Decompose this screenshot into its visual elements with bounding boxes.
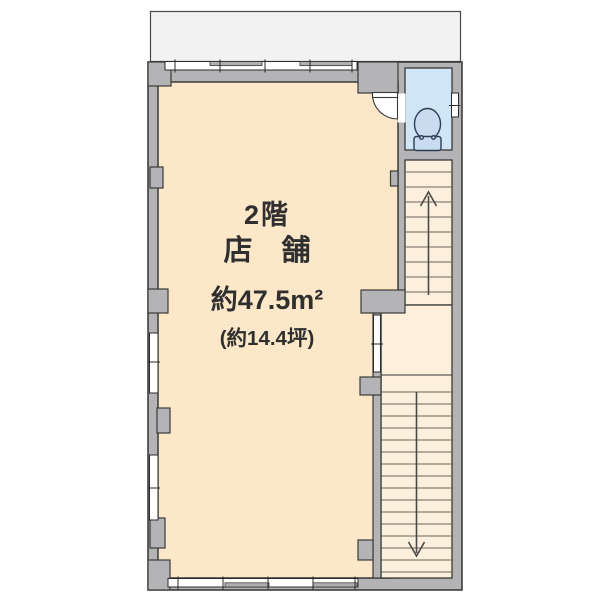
upper-staircase	[405, 160, 452, 305]
pillar	[148, 289, 168, 313]
window-pane	[210, 62, 262, 66]
pillar	[148, 560, 170, 590]
area-tsubo-label: (約14.4坪)	[220, 326, 315, 350]
window-pane	[313, 583, 357, 587]
lower-staircase	[381, 305, 452, 578]
pillar	[157, 408, 170, 433]
floorplan: 2階 店 舗 約47.5m² (約14.4坪)	[0, 0, 600, 600]
toilet-room	[405, 68, 452, 151]
balcony	[151, 12, 461, 62]
door-leaf	[373, 93, 398, 98]
floor-label: 2階	[244, 200, 290, 230]
window-left-upper	[150, 333, 159, 393]
pillar	[150, 167, 163, 188]
pillar	[358, 540, 373, 560]
room-type-label: 店 舗	[223, 234, 310, 267]
pillar	[361, 290, 405, 313]
pillar	[391, 171, 399, 186]
area-sqm-label: 約47.5m²	[211, 284, 324, 315]
wall-notch-top-right	[358, 62, 398, 93]
window-pane	[225, 583, 269, 587]
window-pane	[300, 62, 352, 66]
pillar	[360, 377, 381, 395]
pillar	[150, 518, 165, 548]
toilet-icon	[414, 109, 441, 151]
door-opening	[398, 94, 406, 123]
